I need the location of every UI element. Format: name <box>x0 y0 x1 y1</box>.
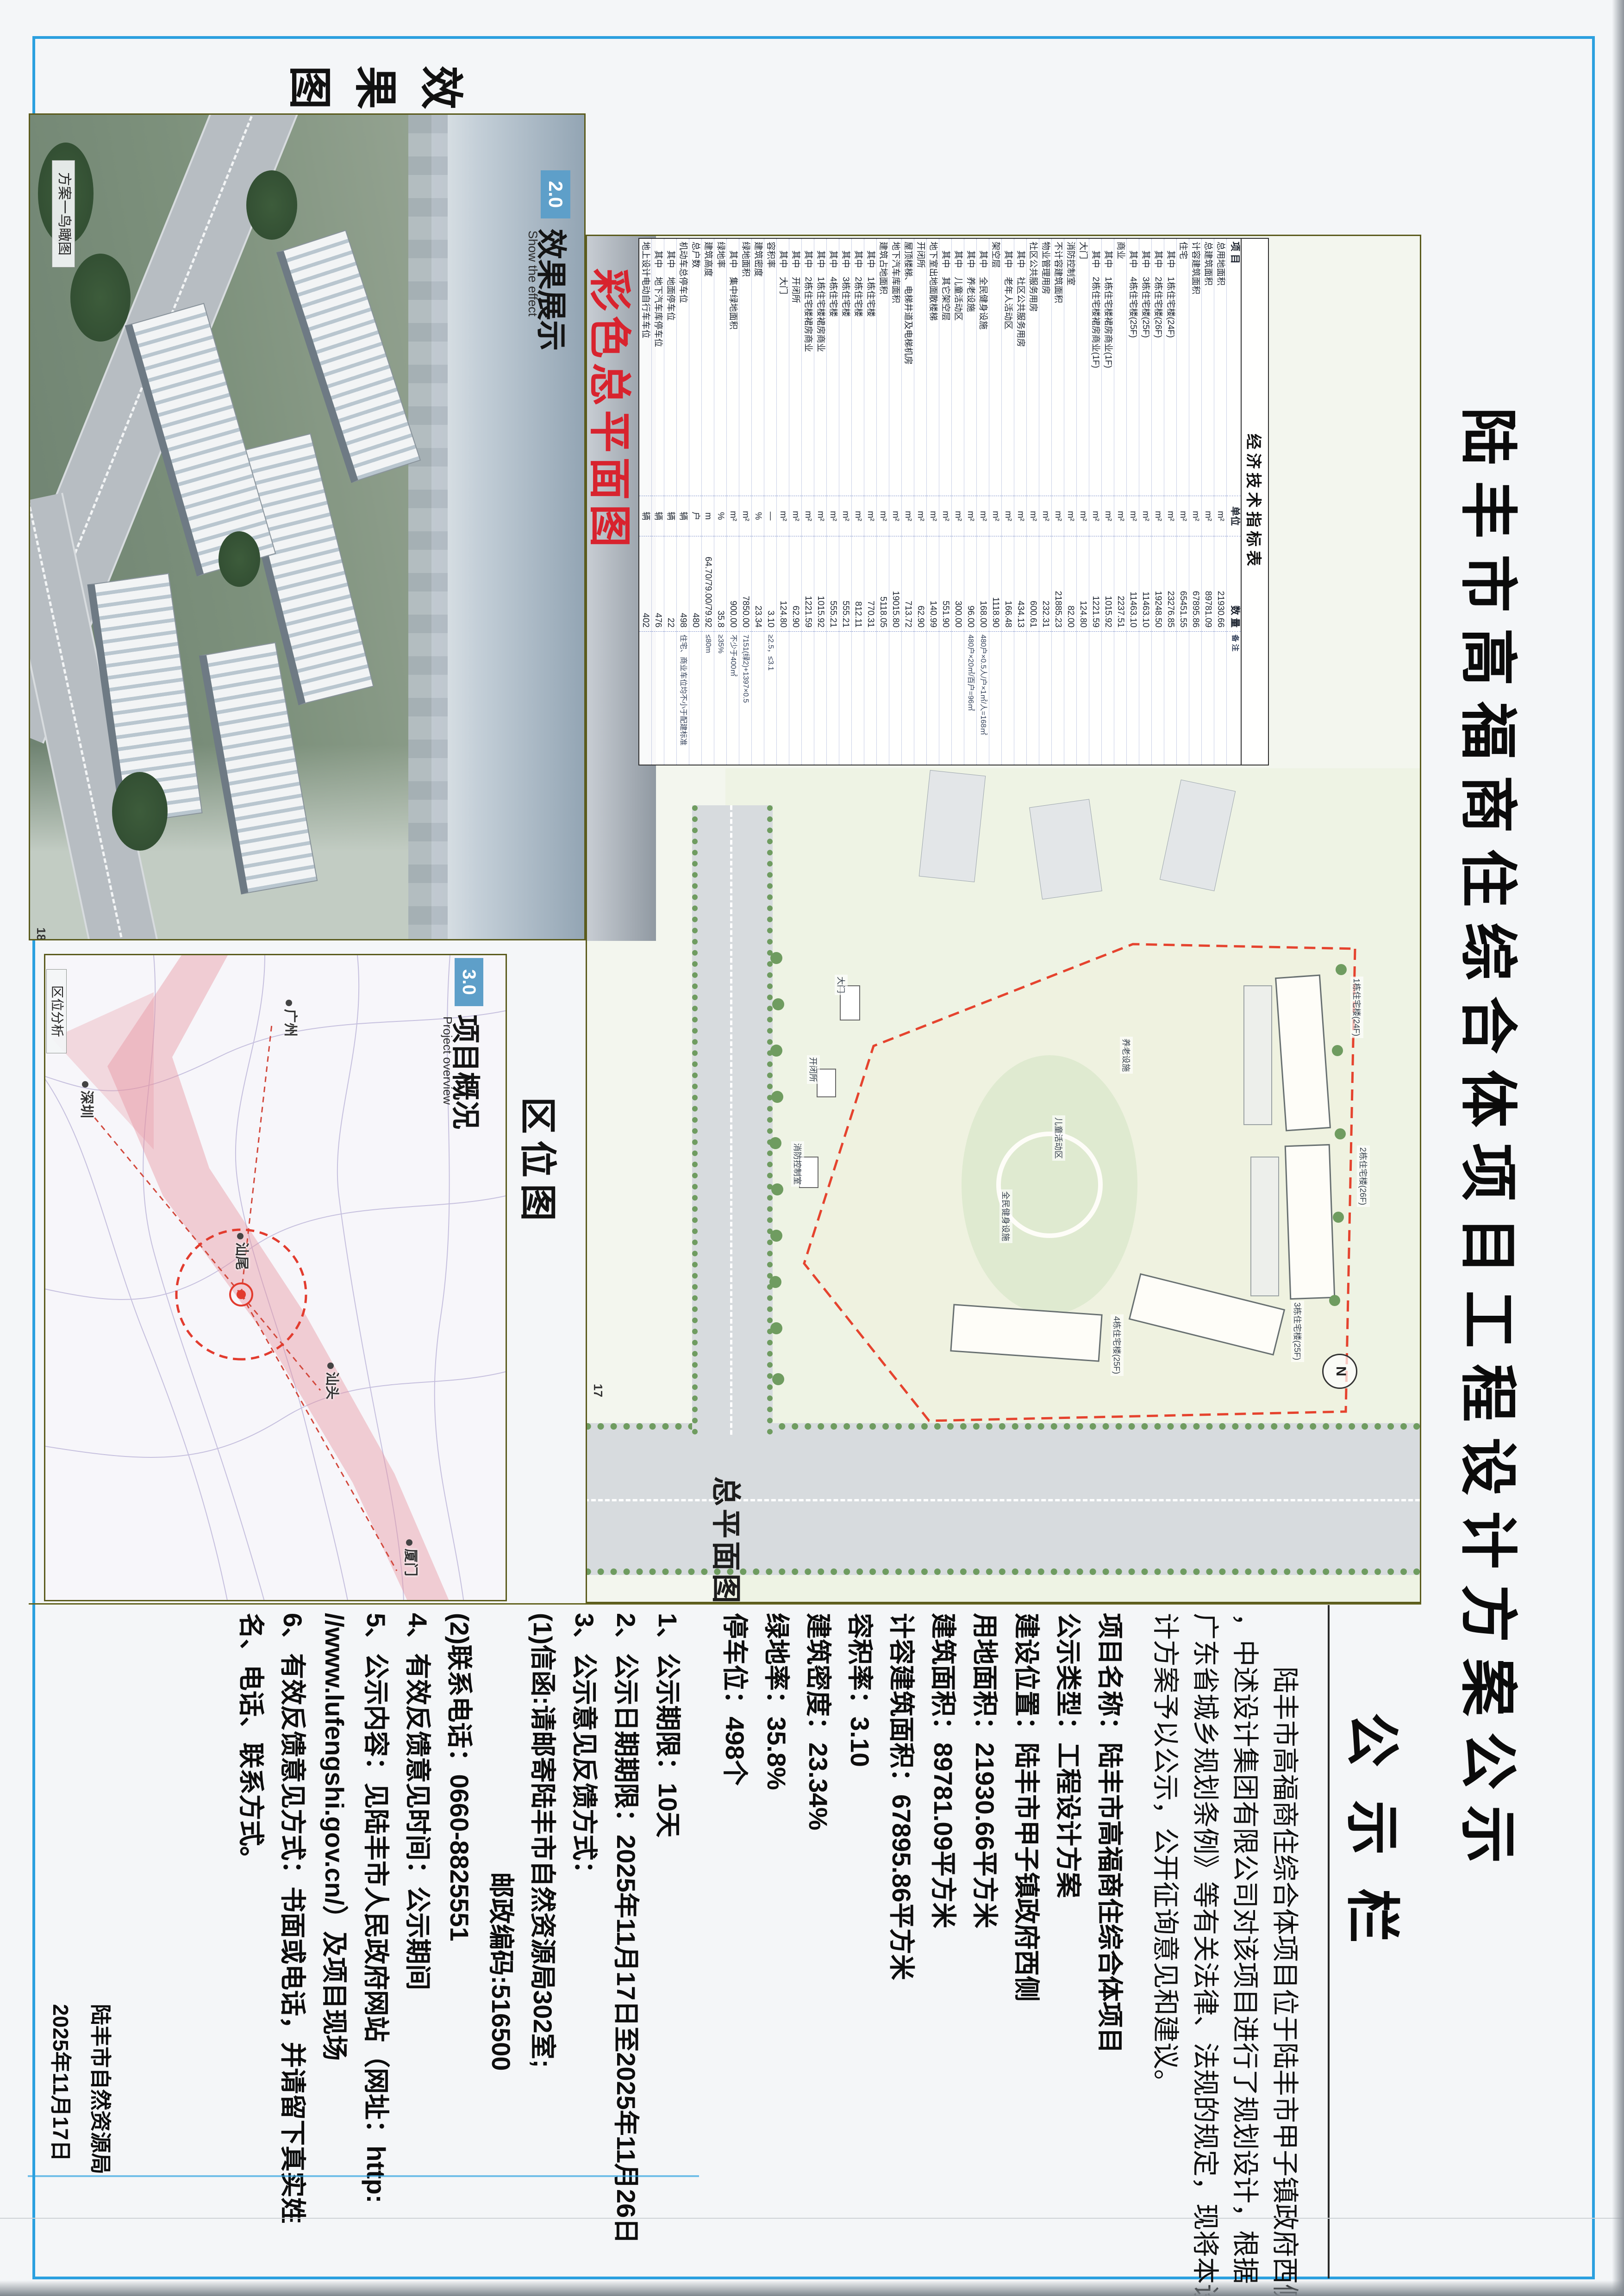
economic-indicator-table: 经济技术指标表 项 目 单位 数 量 备 注 总用地面积 m² <box>638 238 1269 765</box>
table-cell-item: 其中 3栋住宅楼(25F) <box>1139 239 1151 496</box>
table-row: 其中 地下汽车库停车位 辆 476 <box>652 239 664 765</box>
table-cell-qty: 89781.09 <box>1202 536 1214 632</box>
table-cell-remark <box>1027 632 1039 763</box>
notice-detail-line: 公示类型：工程设计方案 <box>1047 1613 1089 2275</box>
city-name: 深圳 <box>79 1090 94 1118</box>
table-row: 开闭所 m² 62.90 <box>914 239 927 765</box>
table-cell-item: 其中 2栋住宅楼裙房商业(1F) <box>1089 239 1101 496</box>
plan-annotation: 4栋住宅楼(25F) <box>1111 1314 1124 1376</box>
table-row: 其中 2栋住宅楼(26F) m² 19248.50 <box>1152 239 1164 765</box>
table-row: 总用地面积 m² 21930.66 <box>1214 239 1227 765</box>
table-cell-qty: 19015.80 <box>889 536 901 632</box>
table-cell-item: 其中 大门 <box>777 239 789 496</box>
margin-label-effect-figure: 效果图 <box>150 52 464 115</box>
signature-date: 2025年11月17日 <box>41 2004 81 2174</box>
table-cell-item: 其中 3栋住宅楼 <box>839 239 851 496</box>
table-header-item: 项 目 <box>1227 239 1241 496</box>
masterplan-big-label: 总平面图 <box>707 1476 750 1603</box>
city-dot-icon <box>327 1363 334 1369</box>
table-cell-remark <box>1077 632 1089 763</box>
plan-annotation: 2栋住宅楼(26F) <box>1357 1145 1370 1207</box>
render-trees <box>246 170 297 240</box>
table-cell-qty: 480 <box>689 536 701 632</box>
page-title: 陆丰市高福商住综合体项目工程设计方案公示 <box>1451 407 1535 1879</box>
table-cell-qty: 600.61 <box>1027 536 1039 632</box>
table-cell-item: 其中 社区公共服务用房 <box>1014 239 1026 496</box>
table-row: 其中 2栋住宅楼裙房商业(1F) m² 1221.59 <box>1089 239 1102 765</box>
table-cell-unit: m² <box>952 496 964 536</box>
table-row: 物业管理用房 m² 232.31 <box>1039 239 1052 765</box>
render-city-skyline <box>401 115 448 939</box>
table-row: 其中 集中绿地面积 m² 900.00 不少于400㎡ <box>727 239 739 765</box>
table-cell-item: 绿地面积 <box>739 239 751 496</box>
table-row: 其中 开闭所 m² 62.90 <box>789 239 802 765</box>
table-cell-item: 商业 <box>1114 239 1126 496</box>
table-cell-qty: 402 <box>639 536 651 632</box>
table-cell-item: 总建筑面积 <box>1202 239 1214 496</box>
table-cell-item: 计容建筑面积 <box>1189 239 1201 496</box>
table-cell-item: 大门 <box>1077 239 1089 496</box>
scanned-notice-page: 效果图 陆丰市高福商住综合体项目工程设计方案公示 <box>0 0 1624 2296</box>
table-cell-item: 总户数 <box>689 239 701 496</box>
table-row: 其中 1栋住宅楼(24F) m² 23276.85 <box>1164 239 1177 765</box>
table-cell-unit: m² <box>1027 496 1039 536</box>
table-cell-item: 社区公共服务用房 <box>1027 239 1039 496</box>
table-cell-remark <box>927 632 939 763</box>
table-cell-remark <box>1014 632 1026 763</box>
table-cell-qty: 82.00 <box>1064 536 1076 632</box>
table-cell-remark <box>814 632 826 763</box>
board-title-gongshilan: 公示栏 <box>1337 1712 1417 1976</box>
notice-detail-line: 容积率：3.10 <box>839 1613 881 2275</box>
table-cell-unit: m² <box>802 496 814 536</box>
table-cell-unit: m² <box>1064 496 1076 536</box>
table-cell-remark <box>952 632 964 763</box>
table-cell-qty: 22 <box>664 536 676 632</box>
table-cell-qty: 551.90 <box>939 536 951 632</box>
table-row: 商业 m² 2237.51 <box>1114 239 1127 765</box>
table-cell-unit: m² <box>939 496 951 536</box>
table-cell-item: 其中 1栋住宅楼(24F) <box>1164 239 1176 496</box>
table-row: 屋顶楼梯、电梯井道及电梯机房 m² 713.72 <box>902 239 914 765</box>
table-row: 地上设计电动自行车车位 辆 402 <box>639 239 652 765</box>
table-cell-unit: 辆 <box>639 496 651 536</box>
notice-intro-line: 陆丰市高福商住综合体项目位于陆丰市甲子镇政府西侧 <box>1265 1613 1305 2275</box>
table-cell-item: 其中 地面停车位 <box>664 239 676 496</box>
city-dot-icon <box>286 1000 292 1006</box>
table-cell-unit: m² <box>789 496 801 536</box>
table-cell-remark: ≥35% <box>714 632 726 763</box>
table-cell-unit: 辆 <box>652 496 664 536</box>
panel-aerial-render: 2.0 效果展示 Show the effect 方案一鸟瞰图 18 <box>29 113 586 940</box>
table-cell-unit: m² <box>977 496 989 536</box>
table-cell-qty: 140.99 <box>927 536 939 632</box>
table-row: 其中 全民健身设施 m² 168.00 480户×0.5人/户×1㎡/人=168… <box>977 239 989 765</box>
notice-detail-line: 绿地率：35.8% <box>756 1613 797 2275</box>
table-cell-remark <box>1189 632 1201 763</box>
table-row: 其中 1栋住宅楼 m² 770.31 <box>864 239 877 765</box>
drawing-sheet: 效果图 陆丰市高福商住综合体项目工程设计方案公示 <box>0 0 1624 2296</box>
table-cell-unit: m² <box>877 496 889 536</box>
plan-annotation: 消防控制室 <box>791 1141 804 1187</box>
plan-annotation: 3栋住宅楼(25F) <box>1291 1300 1304 1362</box>
table-cell-item: 其中 集中绿地面积 <box>727 239 739 496</box>
table-cell-qty: 23.34 <box>752 536 764 632</box>
table-cell-qty: 11463.10 <box>1139 536 1151 632</box>
table-cell-item: 其中 老年人活动区 <box>1002 239 1014 496</box>
table-cell-remark <box>1214 632 1226 763</box>
notice-detail-line: 建设位置：陆丰市甲子镇政府西侧 <box>1006 1613 1047 2275</box>
table-cell-remark <box>1139 632 1151 763</box>
table-cell-unit: m² <box>1189 496 1201 536</box>
table-cell-item: 机动车总停车位 <box>677 239 689 496</box>
table-cell-unit: m² <box>1052 496 1064 536</box>
table-cell-qty: 713.72 <box>902 536 914 632</box>
scan-edge-shadow-bottom <box>0 2280 1624 2296</box>
table-cell-item: 其中 其它架空层 <box>939 239 951 496</box>
table-cell-unit: m² <box>1039 496 1051 536</box>
table-row: 其中 大门 m² 124.80 <box>777 239 789 765</box>
table-cell-unit: m² <box>777 496 789 536</box>
table-cell-remark <box>902 632 914 763</box>
table-cell-unit: m² <box>1077 496 1089 536</box>
table-cell-unit: m² <box>727 496 739 536</box>
table-cell-item: 容积率 <box>764 239 776 496</box>
table-cell-unit: m² <box>914 496 926 536</box>
table-row: 其中 养老设施 m² 96.00 480户×20㎡/百户=96㎡ <box>964 239 977 765</box>
city-name: 汕头 <box>324 1372 339 1400</box>
table-row: 不计容建筑面积 m² 21885.23 <box>1052 239 1064 765</box>
table-row: 其中 老年人活动区 m² 166.48 <box>1002 239 1014 765</box>
table-cell-qty: 498 <box>677 536 689 632</box>
table-cell-remark: 住宅、商业车位均不小于配建标准 <box>677 632 689 763</box>
plan-banner-label-color-masterplan: 彩色总平面图 <box>586 268 644 552</box>
table-cell-qty: 434.13 <box>1014 536 1026 632</box>
table-cell-unit: 辆 <box>664 496 676 536</box>
page-number-17: 17 <box>591 1384 605 1397</box>
scan-edge-shadow-right <box>1612 0 1624 2296</box>
table-cell-item: 开闭所 <box>914 239 926 496</box>
table-cell-remark <box>777 632 789 763</box>
table-cell-qty: 23276.85 <box>1164 536 1176 632</box>
table-row: 建筑高度 m 64.70/79.00/79.92 ≤80m <box>702 239 714 765</box>
table-row: 其中 2栋住宅楼裙房商业 m² 1221.59 <box>802 239 814 765</box>
map-city-label: 汕尾 <box>233 1233 253 1270</box>
table-cell-qty: 1015.92 <box>1102 536 1114 632</box>
table-cell-remark <box>939 632 951 763</box>
table-cell-remark: 不少于400㎡ <box>727 632 739 763</box>
table-cell-unit: m² <box>927 496 939 536</box>
table-cell-unit: m² <box>1164 496 1176 536</box>
notice-detail-line: 项目名称：陆丰市高福商住综合体项目 <box>1089 1613 1131 2275</box>
table-cell-remark: ≤80m <box>702 632 714 763</box>
table-cell-remark <box>752 632 764 763</box>
table-row: 计容建筑面积 m² 67895.86 <box>1189 239 1202 765</box>
signature-block: 陆丰市自然资源局 2025年11月17日 <box>41 2004 120 2174</box>
table-cell-remark <box>1089 632 1101 763</box>
table-cell-item: 其中 1栋住宅楼 <box>864 239 876 496</box>
table-row: 其中 4栋住宅楼 m² 555.21 <box>827 239 839 765</box>
table-cell-unit: m² <box>889 496 901 536</box>
table-cell-qty: 476 <box>652 536 664 632</box>
table-cell-qty: 168.00 <box>977 536 989 632</box>
section-subtitle-en: Project overview <box>440 1016 455 1105</box>
notice-detail-line: 停车位：498个 <box>714 1613 756 2275</box>
table-cell-unit: m² <box>839 496 851 536</box>
table-row: 其中 3栋住宅楼(25F) m² 11463.10 <box>1139 239 1152 765</box>
table-cell-qty: 67895.86 <box>1189 536 1201 632</box>
table-row: 机动车总停车位 辆 498 住宅、商业车位均不小于配建标准 <box>677 239 689 765</box>
table-cell-item: 不计容建筑面积 <box>1052 239 1064 496</box>
page-number-18: 18 <box>34 927 48 940</box>
table-cell-item: 其中 开闭所 <box>789 239 801 496</box>
section-subtitle-en: Show the effect <box>525 230 540 317</box>
table-cell-item: 地上设计电动自行车车位 <box>639 239 651 496</box>
table-row: 消防控制室 m² 82.00 <box>1064 239 1077 765</box>
table-header-unit: 单位 <box>1227 496 1241 536</box>
table-cell-remark <box>1102 632 1114 763</box>
table-row: 绿地面积 m² 7850.00 7151(绿2)+1397×0.5 <box>739 239 752 765</box>
table-cell-unit: m² <box>902 496 914 536</box>
table-row: 其中 1栋住宅楼裙房商业 m² 1015.92 <box>814 239 827 765</box>
section-badge-3-0: 3.0 <box>455 958 483 1006</box>
map-city-label: 深圳 <box>78 1081 98 1118</box>
table-cell-item: 屋顶楼梯、电梯井道及电梯机房 <box>902 239 914 496</box>
table-cell-qty: 1221.59 <box>802 536 814 632</box>
table-header-qty: 数 量 <box>1227 536 1241 632</box>
location-map-big-label: 区位图 <box>514 1097 568 1227</box>
render-caption-birdview: 方案一鸟瞰图 <box>52 160 75 268</box>
table-row: 总建筑面积 m² 89781.09 <box>1202 239 1214 765</box>
north-arrow-icon: N <box>1322 1354 1357 1389</box>
map-caption-location-analysis: 区位分析 <box>46 969 67 1053</box>
table-row: 其中 儿童活动区 m² 300.00 <box>952 239 964 765</box>
table-cell-qty: 65451.55 <box>1177 536 1189 632</box>
table-cell-item: 其中 1栋住宅楼裙房商业(1F) <box>1102 239 1114 496</box>
table-cell-remark <box>827 632 839 763</box>
notice-intro-line: 计方案予以公示，公开征询意见和建议。 <box>1145 1613 1185 2275</box>
plan-annotation: 儿童活动区 <box>1052 1115 1065 1161</box>
table-row: 其中 地面停车位 辆 22 <box>664 239 677 765</box>
rotated-landscape-sheet: 效果图 陆丰市高福商住综合体项目工程设计方案公示 <box>0 0 1624 2296</box>
table-cell-unit: m² <box>1102 496 1114 536</box>
board-title-rule <box>1328 1605 1330 2278</box>
table-row: 绿地率 % 35.8 ≥35% <box>714 239 727 765</box>
table-cell-item: 建筑高度 <box>702 239 714 496</box>
table-cell-item: 地下汽车库面积 <box>889 239 901 496</box>
render-trees <box>219 531 260 587</box>
notice-intro-line: ，中述设计集团有限公司对该项目进行了规划设计，根据《 <box>1225 1613 1265 2275</box>
table-cell-item: 其中 4栋住宅楼(25F) <box>1127 239 1139 496</box>
notice-detail-line: 计容建筑面积：67895.86平方米 <box>881 1613 922 2275</box>
table-cell-unit: m² <box>1089 496 1101 536</box>
table-title: 经济技术指标表 <box>1242 239 1268 765</box>
city-name: 厦门 <box>403 1549 418 1576</box>
table-row: 其中 社区公共服务用房 m² 434.13 <box>1014 239 1027 765</box>
table-cell-remark <box>1039 632 1051 763</box>
table-cell-remark <box>1202 632 1214 763</box>
table-row: 地下汽车库面积 m² 19015.80 <box>889 239 902 765</box>
map-city-label: 厦门 <box>402 1539 422 1576</box>
table-cell-remark <box>1114 632 1126 763</box>
table-cell-unit: — <box>764 496 776 536</box>
table-cell-qty: 1221.59 <box>1089 536 1101 632</box>
table-cell-qty: 770.31 <box>864 536 876 632</box>
table-cell-item: 建筑占地面积 <box>877 239 889 496</box>
table-cell-unit: 辆 <box>677 496 689 536</box>
table-cell-remark <box>789 632 801 763</box>
table-cell-item: 其中 养老设施 <box>964 239 976 496</box>
notice-detail-line: 用地面积：21930.66平方米 <box>964 1613 1006 2275</box>
table-cell-remark <box>802 632 814 763</box>
table-cell-item: 总用地面积 <box>1214 239 1226 496</box>
table-cell-item: 其中 4栋住宅楼 <box>827 239 839 496</box>
table-cell-unit: m² <box>1139 496 1151 536</box>
table-cell-unit: % <box>714 496 726 536</box>
panel-master-plan: 彩色总平面图 经济技术指标表 项 目 单位 数 量 备 注 总用地面积 <box>586 235 1421 1603</box>
table-cell-item: 其中 地下汽车库停车位 <box>652 239 664 496</box>
table-cell-remark <box>877 632 889 763</box>
table-cell-remark <box>652 632 664 763</box>
table-header-remark: 备 注 <box>1227 632 1241 763</box>
table-cell-qty: 11463.10 <box>1127 536 1139 632</box>
table-cell-unit: m² <box>827 496 839 536</box>
table-cell-qty: 64.70/79.00/79.92 <box>702 536 714 632</box>
table-cell-item: 其中 2栋住宅楼(26F) <box>1152 239 1164 496</box>
table-cell-qty: 555.21 <box>839 536 851 632</box>
table-cell-remark <box>1127 632 1139 763</box>
table-cell-qty: 300.00 <box>952 536 964 632</box>
table-row: 其中 3栋住宅楼 m² 555.21 <box>839 239 852 765</box>
table-cell-remark <box>1152 632 1164 763</box>
table-row: 其中 2栋住宅楼 m² 812.11 <box>852 239 864 765</box>
map-city-label: 广州 <box>281 1000 302 1037</box>
table-row: 地下室出地面散楼梯 m² 140.99 <box>927 239 939 765</box>
table-row: 总户数 户 480 <box>689 239 702 765</box>
table-cell-unit: m² <box>1127 496 1139 536</box>
table-row: 建筑密度 % 23.34 <box>752 239 764 765</box>
table-cell-item: 地下室出地面散楼梯 <box>927 239 939 496</box>
table-cell-remark <box>989 632 1001 763</box>
plan-annotation: 1栋住宅楼(24F) <box>1350 977 1363 1038</box>
table-row: 大门 m² 124.80 <box>1077 239 1089 765</box>
city-dot-icon <box>406 1539 412 1546</box>
table-cell-qty: 555.21 <box>827 536 839 632</box>
table-cell-remark <box>664 632 676 763</box>
render-trees <box>112 772 168 851</box>
sheet-fold-line <box>0 2218 1624 2219</box>
table-cell-unit: m² <box>852 496 864 536</box>
table-cell-unit: m² <box>1202 496 1214 536</box>
table-cell-remark: 480户×0.5人/户×1㎡/人=168㎡ <box>977 632 989 763</box>
table-body: 总用地面积 m² 21930.66 总建筑面积 m² 89781.09 <box>639 239 1227 765</box>
location-map-svg <box>44 955 506 1601</box>
plan-annotation: 养老设施 <box>1120 1037 1133 1074</box>
table-cell-qty: 21930.66 <box>1214 536 1226 632</box>
table-cell-remark <box>1177 632 1189 763</box>
notice-detail-line: 建筑密度：23.34% <box>797 1613 839 2275</box>
city-dot-icon <box>82 1081 88 1088</box>
table-cell-remark <box>852 632 864 763</box>
table-cell-qty: 900.00 <box>727 536 739 632</box>
table-cell-item: 其中 全民健身设施 <box>977 239 989 496</box>
table-cell-item: 其中 2栋住宅楼裙房商业 <box>802 239 814 496</box>
table-cell-qty: 3.10 <box>764 536 776 632</box>
table-cell-qty: 2237.51 <box>1114 536 1126 632</box>
table-cell-item: 绿地率 <box>714 239 726 496</box>
table-cell-remark: 7151(绿2)+1397×0.5 <box>739 632 751 763</box>
table-cell-remark <box>1064 632 1076 763</box>
table-cell-remark <box>1052 632 1064 763</box>
table-cell-qty: 812.11 <box>852 536 864 632</box>
table-cell-qty: 1015.92 <box>814 536 826 632</box>
table-cell-item: 物业管理用房 <box>1039 239 1051 496</box>
table-cell-unit: m² <box>1214 496 1226 536</box>
notice-intro: 陆丰市高福商住综合体项目位于陆丰市甲子镇政府西侧，中述设计集团有限公司对该项目进… <box>1145 1613 1305 2275</box>
table-cell-unit: m² <box>864 496 876 536</box>
table-row: 其中 4栋住宅楼(25F) m² 11463.10 <box>1127 239 1139 765</box>
table-cell-qty: 166.48 <box>1002 536 1014 632</box>
map-city-label: 汕头 <box>323 1363 344 1400</box>
notice-detail-line: 建筑面积：89781.09平方米 <box>922 1613 964 2275</box>
table-cell-item: 其中 2栋住宅楼 <box>852 239 864 496</box>
table-cell-unit: m² <box>1014 496 1026 536</box>
render-trees <box>70 254 131 342</box>
table-cell-qty: 21885.23 <box>1052 536 1064 632</box>
table-cell-qty: 62.90 <box>914 536 926 632</box>
section-badge-2-0: 2.0 <box>541 170 570 218</box>
table-cell-remark <box>1164 632 1176 763</box>
table-cell-remark <box>839 632 851 763</box>
table-cell-qty: 124.80 <box>1077 536 1089 632</box>
table-cell-unit: % <box>752 496 764 536</box>
table-cell-unit: m² <box>1152 496 1164 536</box>
table-cell-unit: m² <box>964 496 976 536</box>
city-name: 汕尾 <box>234 1242 249 1270</box>
table-cell-item: 消防控制室 <box>1064 239 1076 496</box>
table-cell-unit: 户 <box>689 496 701 536</box>
table-row: 住宅 m² 65451.55 <box>1177 239 1189 765</box>
table-cell-qty: 1118.90 <box>989 536 1001 632</box>
table-row: 其中 其它架空层 m² 551.90 <box>939 239 952 765</box>
table-cell-unit: m² <box>1114 496 1126 536</box>
table-cell-qty: 62.90 <box>789 536 801 632</box>
table-cell-qty: 5118.05 <box>877 536 889 632</box>
table-cell-remark: ≥2.5，≤3.1 <box>764 632 776 763</box>
plan-annotation: 大门 <box>835 975 848 995</box>
table-cell-unit: m <box>702 496 714 536</box>
table-cell-qty: 7850.00 <box>739 536 751 632</box>
table-row: 架空层 m² 1118.90 <box>989 239 1002 765</box>
table-cell-unit: m² <box>1177 496 1189 536</box>
table-cell-remark <box>639 632 651 763</box>
table-cell-item: 其中 儿童活动区 <box>952 239 964 496</box>
signature-org: 陆丰市自然资源局 <box>81 2004 120 2174</box>
table-cell-qty: 96.00 <box>964 536 976 632</box>
table-cell-qty: 35.8 <box>714 536 726 632</box>
plan-annotation: 全民健身设施 <box>999 1189 1012 1243</box>
table-header-row: 项 目 单位 数 量 备 注 <box>1227 239 1242 765</box>
table-row: 建筑占地面积 m² 5118.05 <box>877 239 889 765</box>
table-cell-remark <box>889 632 901 763</box>
city-name: 广州 <box>282 1009 298 1037</box>
table-row: 容积率 — 3.10 ≥2.5，≤3.1 <box>764 239 777 765</box>
table-row: 社区公共服务用房 m² 600.61 <box>1027 239 1039 765</box>
table-cell-unit: m² <box>989 496 1001 536</box>
table-cell-qty: 19248.50 <box>1152 536 1164 632</box>
table-cell-remark <box>689 632 701 763</box>
table-cell-item: 建筑密度 <box>752 239 764 496</box>
